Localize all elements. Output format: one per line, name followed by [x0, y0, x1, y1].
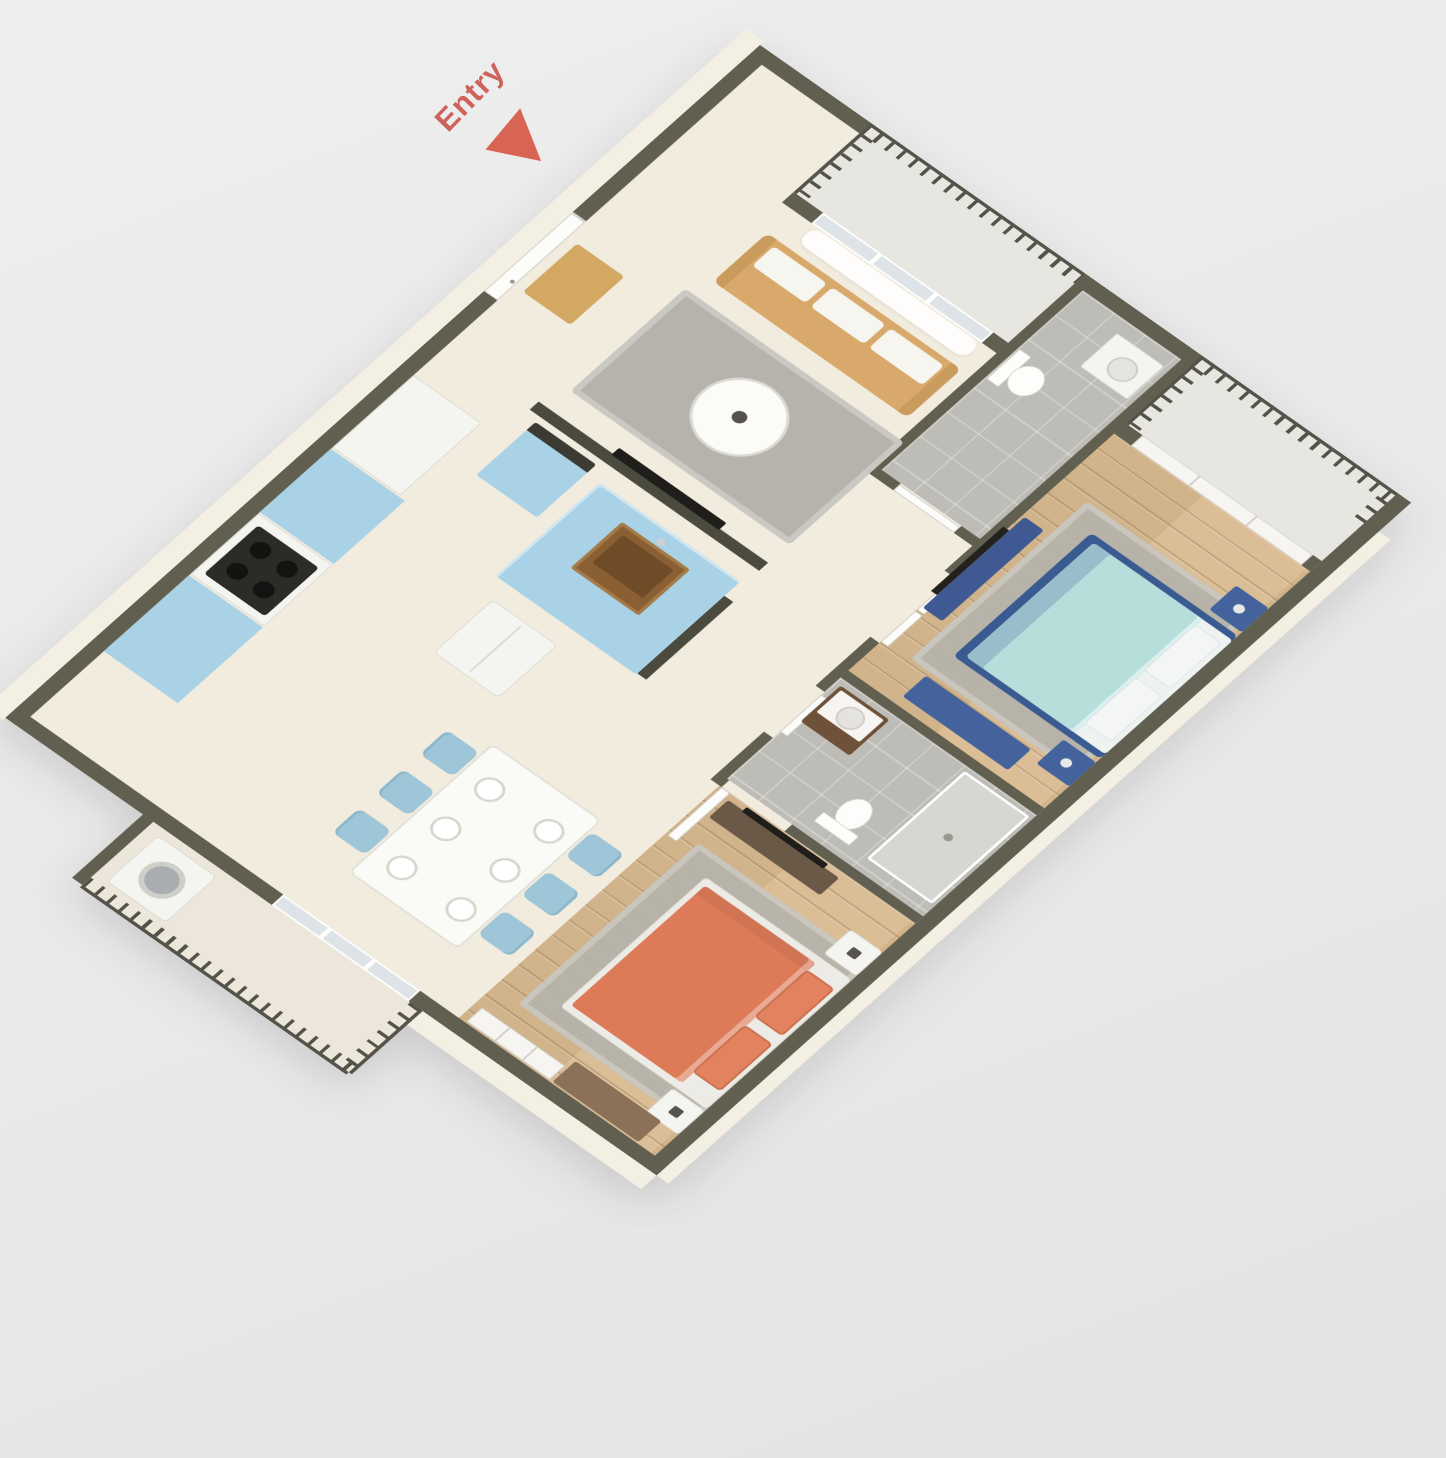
vanity-basin — [1100, 352, 1144, 387]
nightstand-item — [846, 947, 863, 960]
panel-seam — [1246, 516, 1258, 526]
burner-icon — [272, 557, 302, 581]
lamp-icon — [1058, 756, 1075, 769]
lamp-icon — [1231, 602, 1248, 615]
table-decor — [728, 408, 750, 426]
slider-mullion — [869, 253, 882, 264]
panel-seam — [522, 1047, 538, 1061]
burner-icon — [222, 559, 252, 583]
slider-mullion — [319, 928, 332, 939]
washer-door-icon — [129, 854, 195, 907]
slider-mullion — [925, 293, 938, 304]
apartment-floor-plan — [5, 45, 1411, 1175]
panel-seam — [495, 1027, 511, 1041]
nightstand-item — [668, 1105, 685, 1118]
island-sink — [570, 522, 690, 616]
entry-label: Entry — [428, 53, 512, 139]
panel-seam — [1189, 476, 1201, 486]
floor-plan-scene: Entry — [0, 0, 1446, 1458]
door-handle-icon — [509, 279, 516, 284]
slider-mullion — [363, 959, 376, 970]
entry-arrow-icon — [485, 108, 558, 182]
burner-icon — [245, 538, 275, 562]
burner-icon — [249, 578, 279, 602]
fridge-seam — [470, 626, 522, 672]
shower-drain-icon — [941, 832, 955, 843]
